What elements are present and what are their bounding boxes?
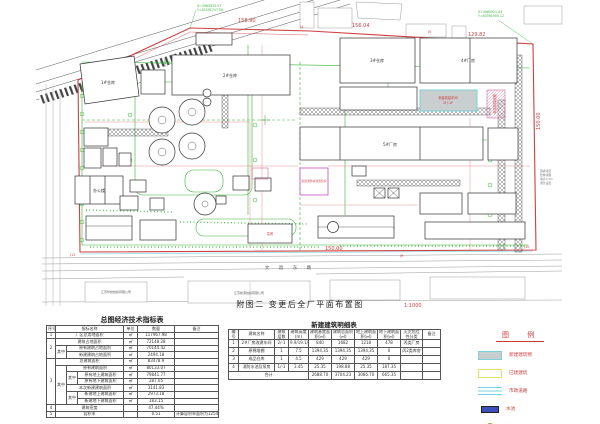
table-cell: 2494.18 — [138, 352, 175, 359]
table-cell: 新建地上建筑面积 — [78, 391, 124, 398]
table-cell: 198.88 — [332, 364, 355, 372]
table-cell: 1394.35 — [332, 348, 355, 356]
table-cell: 建筑占地面积 — [56, 339, 124, 346]
indicators-table-title: 总图经济技术指标表 — [46, 315, 218, 325]
table-cell: ㎡ — [124, 391, 138, 398]
legend-item-new-building: 新建建筑物 — [478, 350, 590, 360]
table-cell: 7.5 — [289, 348, 309, 356]
label-b5: 3#仓库 — [370, 57, 384, 63]
table-cell — [175, 345, 219, 352]
table-cell: 840 — [309, 340, 332, 348]
table-cell: 消防水池及泵房 — [239, 364, 275, 372]
table-row: 序号指标名称单位数量备注 — [47, 326, 219, 333]
table-cell: ㎡ — [124, 365, 138, 372]
indicators-table: 总图经济技术指标表 序号指标名称单位数量备注1厂区总用地面积㎡117967.98… — [46, 315, 218, 418]
label-b1: 1#仓库 — [101, 79, 115, 85]
table-cell: 2#厂房改建车间 — [239, 340, 275, 348]
table-cell: 80133.07 — [138, 365, 175, 372]
table-cell — [423, 356, 441, 364]
municipal-road-swatch-icon — [478, 387, 502, 395]
company1-name: 江苏华纺纺织有限公司 — [101, 289, 131, 294]
coord-tr-y: Y=40391900.12 — [478, 14, 504, 18]
table-cell: 新建地下建筑面积 — [78, 398, 124, 405]
table-cell: 地下建筑面积(㎡) — [378, 330, 401, 340]
table-cell: 25.35 — [309, 364, 332, 372]
caption-scale: 1:1000 — [404, 303, 422, 309]
dim-right: 150.00 — [536, 113, 542, 131]
table-cell — [124, 405, 138, 412]
table-cell: 1 — [229, 340, 239, 348]
newbuild-table-grid: 编号建筑名称建筑层数建筑高度(m)建筑基底面积(㎡)建筑总面积(㎡)地上建筑面积… — [228, 329, 441, 380]
table-cell — [401, 356, 423, 364]
table-cell: 4.5 — [289, 356, 309, 364]
label-new1-line2: 2F/-1F — [443, 101, 453, 105]
table-cell: ㎡ — [124, 358, 138, 365]
table-row: 其中新建地上建筑面积㎡2973.18 — [47, 391, 219, 398]
table-cell: 2973.18 — [138, 391, 175, 398]
table-cell: 其中 — [67, 372, 78, 385]
table-row: 4消防水池及泵房1/-13.4525.35198.8825.35187.35 — [229, 364, 441, 372]
point-j10: J10 — [523, 245, 530, 249]
table-cell — [175, 378, 219, 385]
drawing-page: 158.90 156.04 129.82 150.00 150.00 J4 J5… — [0, 0, 600, 424]
table-cell: 3066.70 — [355, 372, 378, 380]
table-cell: 429 — [355, 356, 378, 364]
table-cell: ㎡ — [124, 385, 138, 392]
table-cell: 建筑层数 — [275, 330, 289, 340]
table-cell: 4 — [47, 405, 56, 412]
table-cell — [423, 340, 441, 348]
table-row: 合计2688.703704.233066.70665.35 — [229, 372, 441, 380]
table-row: 其中原有地上建筑面积㎡79841.77 — [47, 372, 219, 379]
table-cell: 3 — [229, 356, 239, 364]
label-new3: 新建消防水池及泵房 — [301, 179, 326, 183]
table-cell: 187.35 — [378, 364, 401, 372]
legend: 图 例 新建建筑物 已建建筑 市政道路 水池 | 储罐 配变电所及消防配电柜 — [478, 322, 590, 424]
table-cell: 4 — [229, 364, 239, 372]
table-cell — [175, 332, 219, 339]
label-b10: 5#厂房 — [383, 141, 397, 147]
west-road — [46, 84, 60, 306]
table-cell: 建筑总面积(㎡) — [332, 330, 355, 340]
table-row: 1厂区总用地面积㎡117967.98 — [47, 332, 219, 339]
table-cell: ㎡ — [124, 372, 138, 379]
table-cell: 合计 — [229, 372, 309, 380]
table-row: 新建建筑占地面积㎡2494.18 — [47, 352, 219, 359]
legend-item-label: 新建建筑物 — [509, 352, 532, 358]
table-cell: 备注 — [175, 326, 219, 333]
table-cell: 5 — [47, 411, 56, 418]
table-cell: 429 — [332, 356, 355, 364]
dim-top2: 156.04 — [352, 23, 370, 29]
table-cell: 429 — [309, 356, 332, 364]
table-cell: 原有建筑占地面积 — [67, 345, 124, 352]
table-cell: 原有地下建筑面积 — [78, 378, 124, 385]
table-cell: 厂区总用地面积 — [56, 332, 124, 339]
label-pump: 泵房 — [267, 231, 273, 236]
table-cell: 火灾危险性分类 — [401, 330, 423, 340]
table-cell — [175, 358, 219, 365]
table-cell: 2 — [47, 339, 56, 359]
company2-name: 江苏新源纺织有限公司 — [234, 290, 264, 295]
table-cell: 丙2类库房 — [401, 348, 423, 356]
table-cell — [124, 411, 138, 418]
table-cell: 建筑密度 — [56, 405, 124, 412]
table-cell: 665.35 — [378, 372, 401, 380]
table-cell: 1 — [275, 348, 289, 356]
new-building-swatch-icon — [478, 351, 502, 360]
table-cell: 序号 — [47, 326, 56, 333]
table-cell: 其中 — [67, 391, 78, 404]
table-cell: 成品仓库 — [239, 356, 275, 364]
table-cell: 计算容积率面积为125484.18㎡ — [175, 411, 219, 418]
dim-bottom: 150.00 — [325, 246, 343, 252]
label-b15: 办公楼 — [93, 187, 105, 193]
table-cell — [175, 385, 219, 392]
table-cell: 3704.23 — [332, 372, 355, 380]
wall-note: 围墙详见 结构详图 墙高2.2m 通长设置 — [540, 169, 553, 185]
table-cell: 原棉堆棚 — [239, 348, 275, 356]
table-cell: 备注 — [423, 330, 441, 340]
table-cell: 79841.77 — [138, 372, 175, 379]
table-cell: 3.45 — [289, 364, 309, 372]
newbuild-table: 新建建筑明细表 编号建筑名称建筑层数建筑高度(m)建筑基底面积(㎡)建筑总面积(… — [228, 319, 440, 380]
table-cell: 地上建筑面积(㎡) — [355, 330, 378, 340]
table-row: 3成品仓库14.54294294290 — [229, 356, 441, 364]
table-cell: 287.05 — [138, 378, 175, 385]
table-cell: 原有地上建筑面积 — [78, 372, 124, 379]
table-cell: 70144.42 — [138, 345, 175, 352]
table-cell: 建筑高度(m) — [289, 330, 309, 340]
table-cell: ㎡ — [124, 378, 138, 385]
table-cell: 117967.98 — [138, 332, 175, 339]
table-cell: 0 — [378, 348, 401, 356]
table-row: 3总建筑面积㎡83478.9 — [47, 358, 219, 365]
indicators-table-grid: 序号指标名称单位数量备注1厂区总用地面积㎡117967.982建筑占地面积㎡72… — [46, 325, 219, 418]
point-j12: J12 — [69, 253, 76, 257]
table-cell: 1 — [275, 356, 289, 364]
table-cell — [175, 372, 219, 379]
table-cell — [423, 348, 441, 356]
pool-swatch-icon — [481, 406, 499, 413]
table-cell: 1394.35 — [355, 348, 378, 356]
table-cell: 其中 — [56, 365, 67, 405]
table-cell — [175, 352, 219, 359]
table-row: 本次新建建筑面积㎡3141.83 — [47, 385, 219, 392]
label-new2: 新建原棉堆棚 — [492, 94, 497, 113]
table-row: 其中原有建筑面积㎡80133.07 — [47, 365, 219, 372]
table-cell: ㎡ — [124, 339, 138, 346]
table-row: 12#厂房改建车间2/-19.9/19.1/23.984016821218478… — [229, 340, 441, 348]
table-cell: 183.15 — [138, 398, 175, 405]
table-cell: 3141.83 — [138, 385, 175, 392]
existing-building-swatch-icon — [478, 369, 502, 378]
wall-note-4: 通长设置 — [540, 181, 551, 185]
legend-item-label: 已建建筑 — [509, 370, 527, 376]
table-cell — [175, 405, 219, 412]
table-cell: 9.9/19.1/23.9 — [289, 340, 309, 348]
table-cell — [175, 365, 219, 372]
legend-title: 图 例 — [496, 330, 544, 342]
coord-tl-y: Y=40391747.58 — [197, 8, 223, 12]
table-cell: 0 — [378, 356, 401, 364]
table-row: 5容积率0.51计算容积率面积为125484.18㎡ — [47, 411, 219, 418]
table-cell: 1682 — [332, 340, 355, 348]
table-cell: 指标名称 — [56, 326, 124, 333]
point-j9: J9 — [399, 254, 403, 258]
table-cell: 1 — [47, 332, 56, 339]
legend-item-label: 水池 — [506, 406, 515, 412]
table-cell — [175, 339, 219, 346]
table-cell: 1/-1 — [275, 364, 289, 372]
table-row: 2建筑占地面积㎡72148.28 — [47, 339, 219, 346]
table-cell: 本次新建建筑面积 — [67, 385, 124, 392]
table-cell: 2/-1 — [275, 340, 289, 348]
table-cell: ㎡ — [124, 345, 138, 352]
dim-top1: 158.90 — [238, 18, 256, 24]
table-cell — [423, 364, 441, 372]
table-cell: 1394.35 — [309, 348, 332, 356]
point-j5: J5 — [427, 30, 431, 34]
table-cell — [175, 391, 219, 398]
table-cell: 0.51 — [138, 411, 175, 418]
legend-item-existing-building: 已建建筑 — [478, 368, 590, 378]
table-cell: 25.35 — [355, 364, 378, 372]
table-cell: 1218 — [355, 340, 378, 348]
legend-item-road: 市政道路 — [478, 386, 590, 396]
table-cell: 83478.9 — [138, 358, 175, 365]
table-row: 其中原有建筑占地面积㎡70144.42 — [47, 345, 219, 352]
legend-item-label: 市政道路 — [509, 388, 527, 394]
legend-item-pool: 水池 — [478, 404, 590, 414]
table-cell: 新建建筑占地面积 — [67, 352, 124, 359]
table-cell: 3 — [47, 358, 56, 404]
table-cell: 建筑名称 — [239, 330, 275, 340]
label-b4: 2#仓库 — [223, 72, 237, 78]
table-cell: ㎡ — [124, 332, 138, 339]
table-cell: 原有建筑面积 — [67, 365, 124, 372]
table-row: 4建筑密度47.44% — [47, 405, 219, 412]
table-cell: 编号 — [229, 330, 239, 340]
table-cell: 单位 — [124, 326, 138, 333]
table-cell: 其中 — [56, 345, 67, 358]
label-b6: 4#厂房 — [461, 57, 475, 63]
table-cell — [423, 372, 441, 380]
caption-text: 附图二 变更后全厂平面布置图 — [236, 299, 364, 309]
table-cell: 建筑基底面积(㎡) — [309, 330, 332, 340]
table-cell: ㎡ — [124, 352, 138, 359]
table-cell: 47.44% — [138, 405, 175, 412]
table-cell: 2688.70 — [309, 372, 332, 380]
dim-top3: 129.82 — [468, 32, 486, 38]
table-cell: 容积率 — [56, 411, 124, 418]
street-name: 文 昌 东 路 — [265, 264, 315, 271]
newbuild-table-title: 新建建筑明细表 — [228, 319, 440, 329]
table-cell: 72148.28 — [138, 339, 175, 346]
table-cell: 数量 — [138, 326, 175, 333]
table-cell: 丙类厂房 — [401, 340, 423, 348]
table-cell: 2 — [229, 348, 239, 356]
table-cell: 478 — [378, 340, 401, 348]
table-cell: ㎡ — [124, 398, 138, 405]
table-cell: 总建筑面积 — [56, 358, 124, 365]
table-cell — [175, 398, 219, 405]
label-new1-line1: 新建改建车间 — [438, 95, 457, 100]
table-row: 编号建筑名称建筑层数建筑高度(m)建筑基底面积(㎡)建筑总面积(㎡)地上建筑面积… — [229, 330, 441, 340]
table-row: 2原棉堆棚17.51394.351394.351394.350丙2类库房 — [229, 348, 441, 356]
table-cell — [401, 364, 423, 372]
table-cell — [401, 372, 423, 380]
